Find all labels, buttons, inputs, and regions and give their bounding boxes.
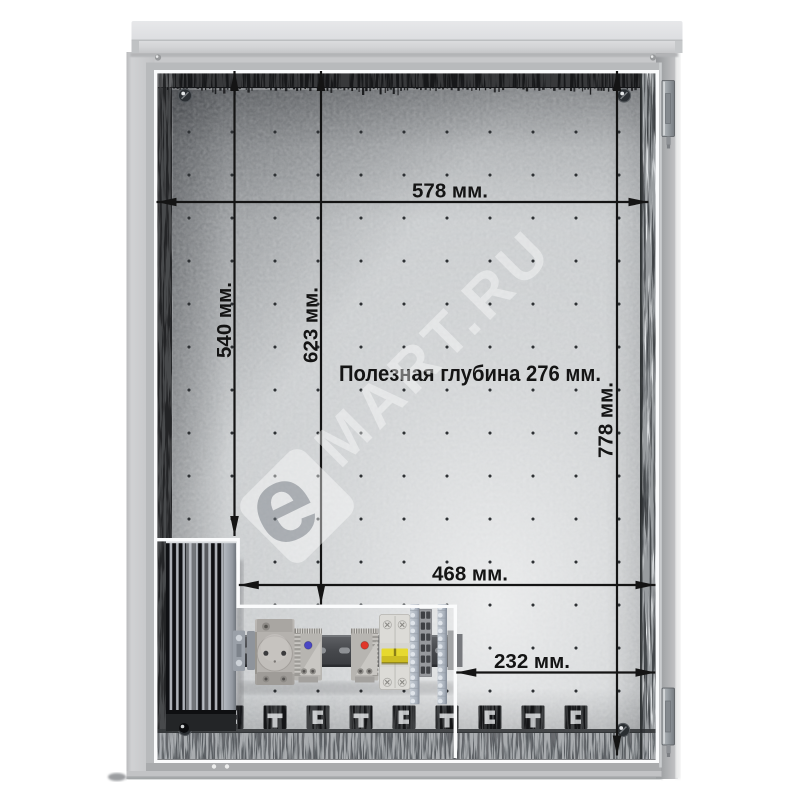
svg-text:232 мм.: 232 мм.	[494, 650, 570, 673]
svg-text:468 мм.: 468 мм.	[432, 563, 508, 586]
svg-text:778 мм.: 778 мм.	[595, 382, 618, 458]
svg-text:540 мм.: 540 мм.	[213, 282, 236, 358]
svg-text:623 мм.: 623 мм.	[300, 287, 323, 363]
svg-text:578 мм.: 578 мм.	[412, 180, 488, 203]
